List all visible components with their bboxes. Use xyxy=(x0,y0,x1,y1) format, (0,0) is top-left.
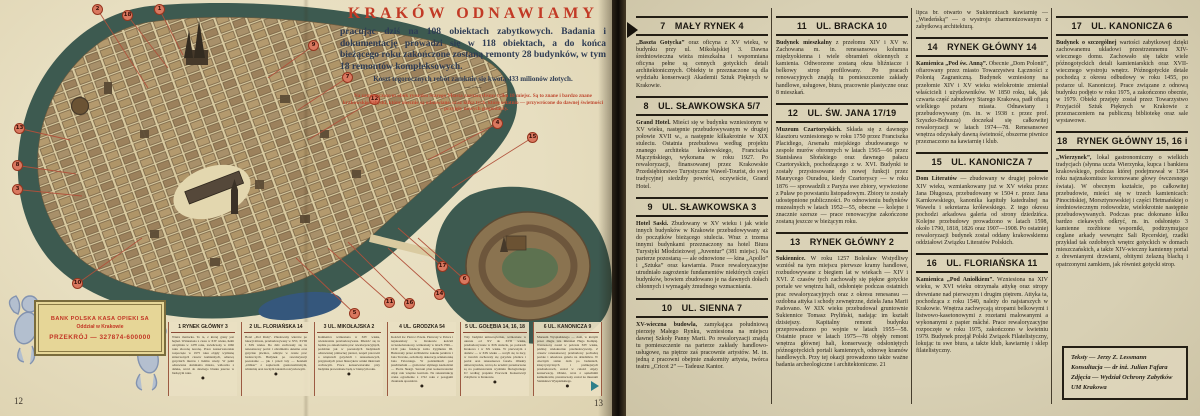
page-number-12: 12 xyxy=(14,396,23,406)
map-marker-16: 16 xyxy=(404,298,415,309)
legend-box-footnote-dot: ● xyxy=(388,384,456,388)
page-number-13: 13 xyxy=(594,398,603,408)
legend-box-text: Hotel „Pod Różą”. Zbudowany wkrótce po l… xyxy=(242,333,310,372)
legend-box-heading: 3 UL. MIKOŁAJSKA 2 xyxy=(317,322,381,333)
map-marker-13: 13 xyxy=(14,123,25,134)
legend-box-text: Wieża mariacka. To ta, z której grany je… xyxy=(169,333,237,376)
legend-box-text: Kościół św. Piotra i Pawła. Pierwszy w P… xyxy=(388,333,456,384)
spread-spine xyxy=(612,0,626,416)
section-heading-16: 16 UL. FLORIAŃSKA 11 xyxy=(916,253,1048,273)
text-column-3: lipca br. otwarto w Sukiennicach kawiarn… xyxy=(916,10,1048,410)
map-marker-1: 1 xyxy=(154,4,165,15)
ornament-divider: — · — xyxy=(336,85,610,91)
bank-stamp-line2: Oddział w Krakowie xyxy=(77,324,124,330)
section-heading-8: 8 UL. SŁAWKOWSKA 5/7 xyxy=(636,96,768,116)
page-title: KRAKÓW ODNAWIAMY xyxy=(336,5,610,23)
page-turn-arrow-icon xyxy=(591,381,599,391)
section-heading-14: 14 RYNEK GŁÓWNY 14 xyxy=(916,37,1048,57)
map-legend-box-4: 4 UL. GRODZKA 54Kościół św. Piotra i Paw… xyxy=(387,322,456,396)
section-text: Kamienica „Pod św. Anną”. Obecnie „Dom P… xyxy=(916,61,1048,146)
map-legend-box-5: 5 UL. GOŁĘBIA 14, 16, 18Trzy budynki uni… xyxy=(460,322,529,396)
column-divider xyxy=(771,8,772,404)
section-text: „Wierzynek”, lokal gastronomiczny o wiel… xyxy=(1056,155,1188,269)
map-marker-14: 14 xyxy=(434,289,445,300)
bank-stamp-line3: PRZEKRÓJ — 327874-600000 xyxy=(49,334,151,341)
section-heading-11: 11 UL. BRACKA 10 xyxy=(776,16,908,36)
map-marker-2: 2 xyxy=(92,4,103,15)
cost-line: Koszt tegorocznych robót zamknie się kwo… xyxy=(336,75,610,84)
legend-box-heading: 5 UL. GOŁĘBIA 14, 16, 18 xyxy=(463,322,527,333)
map-marker-11: 11 xyxy=(384,297,395,308)
section-text: Kamienica „Pod Aniołkiem”. Wzniesiona na… xyxy=(916,277,1048,355)
column-divider xyxy=(1051,8,1052,404)
section-text: Sukiennice. W roku 1257 Bolesław Wstydli… xyxy=(776,256,908,370)
text-column-1: 7 MAŁY RYNEK 4„Baszta Gotycka” oraz ofic… xyxy=(636,10,768,410)
map-legend-row: 1 RYNEK GŁÓWNY 3Wieża mariacka. To ta, z… xyxy=(168,322,608,396)
map-note: Na zamieszczonym obok rysunku Starego Mi… xyxy=(342,93,604,113)
legend-box-heading: 1 RYNEK GŁÓWNY 3 xyxy=(171,322,235,333)
legend-box-footnote-dot: ● xyxy=(242,372,310,376)
section-text: Budynek mieszkalny z przełomu XIV i XV w… xyxy=(776,40,908,97)
bank-stamp-line1: BANK POLSKA KASA OPIEKI SA xyxy=(51,316,149,322)
section-heading-18: 18 RYNEK GŁÓWNY 15, 16 i 17 xyxy=(1056,131,1188,151)
right-page: 7 MAŁY RYNEK 4„Baszta Gotycka” oraz ofic… xyxy=(626,0,1200,416)
magazine-spread: 121897124151383105111617614 KRAKÓW ODNAW… xyxy=(0,0,1200,416)
map-marker-4: 4 xyxy=(492,118,503,129)
section-heading-7: 7 MAŁY RYNEK 4 xyxy=(636,16,768,36)
credit-line: Zdjęcia — Wydział Ochrony Zabytków UM Kr… xyxy=(1071,373,1179,393)
bank-stamp: BANK POLSKA KASA OPIEKI SA Oddział w Kra… xyxy=(34,300,166,356)
section-heading-9: 9 UL. SŁAWKOWSKA 3 xyxy=(636,197,768,217)
map-marker-9: 9 xyxy=(308,40,319,51)
section-text: Muzeum Czartoryskich. Składa się z dawne… xyxy=(776,127,908,226)
legend-box-text: Trzy budynki uniwersyteckie, wzniesione … xyxy=(461,333,529,380)
section-heading-15: 15 UL. KANONICZA 7 xyxy=(916,152,1048,172)
section-text: Grand Hotel. Mieści się w budynku wznies… xyxy=(636,120,768,191)
map-marker-15: 15 xyxy=(527,132,538,143)
section-heading-10: 10 UL. SIENNA 7 xyxy=(636,298,768,318)
map-marker-17: 17 xyxy=(437,261,448,272)
map-marker-8: 8 xyxy=(12,160,23,171)
section-heading-17: 17 UL. KANONICZA 6 xyxy=(1056,16,1188,36)
left-page: 121897124151383105111617614 KRAKÓW ODNAW… xyxy=(0,0,612,416)
section-text: lipca br. otwarto w Sukiennicach kawiarn… xyxy=(916,10,1048,31)
credit-line: Konsultacja — dr inż. Julian Fąfara xyxy=(1071,363,1179,373)
legend-box-text: Kamienica wzniesiona w XIV wieku, wielok… xyxy=(315,333,383,372)
section-text: XV-wieczna budowla, zamykająca południow… xyxy=(636,322,768,372)
map-marker-18: 18 xyxy=(122,10,133,21)
credits-box: Teksty — Jerzy Z. LessmannKonsultacja — … xyxy=(1062,346,1188,400)
legend-box-footnote-dot: ● xyxy=(169,376,237,380)
section-text: Hotel Saski. Zbudowany w XV wieku i jak … xyxy=(636,221,768,292)
map-legend-box-2: 2 UL. FLORIAŃSKA 14Hotel „Pod Różą”. Zbu… xyxy=(241,322,310,396)
section-text: „Baszta Gotycka” oraz oficyna z XV wieku… xyxy=(636,40,768,90)
column-divider xyxy=(911,8,912,404)
section-heading-12: 12 UL. ŚW. JANA 17/19 xyxy=(776,103,908,123)
map-legend-box-1: 1 RYNEK GŁÓWNY 3Wieża mariacka. To ta, z… xyxy=(168,322,237,396)
legend-box-footnote-dot: ● xyxy=(315,372,383,376)
headline-block: KRAKÓW ODNAWIAMY pracując dziś na 108 ob… xyxy=(336,3,610,113)
map-marker-3: 3 xyxy=(12,184,23,195)
text-column-2: 11 UL. BRACKA 10Budynek mieszkalny z prz… xyxy=(776,10,908,410)
legend-box-footnote-dot: ● xyxy=(461,380,529,384)
map-marker-5: 5 xyxy=(349,308,360,319)
section-text: Dom Literatów — zbudowany w drugiej poło… xyxy=(916,176,1048,247)
legend-box-heading: 6 UL. KANONICZA 9 xyxy=(536,322,599,333)
map-marker-10: 10 xyxy=(72,278,83,289)
credit-line: Teksty — Jerzy Z. Lessmann xyxy=(1071,353,1179,363)
intro-paragraph: pracując dziś na 108 obiektach zabytkowy… xyxy=(340,27,606,73)
map-marker-6: 6 xyxy=(459,274,470,285)
legend-box-heading: 4 UL. GRODZKA 54 xyxy=(390,322,454,333)
legend-box-heading: 2 UL. FLORIAŃSKA 14 xyxy=(244,322,308,333)
map-legend-box-3: 3 UL. MIKOŁAJSKA 2Kamienica wzniesiona w… xyxy=(314,322,383,396)
section-text: Budynek o szczególnej wartości zabytkowe… xyxy=(1056,40,1188,125)
section-heading-13: 13 RYNEK GŁÓWNY 2 xyxy=(776,232,908,252)
legend-box-text: Muzeum Wyspiańskiego — dom, w którym prz… xyxy=(534,333,601,384)
